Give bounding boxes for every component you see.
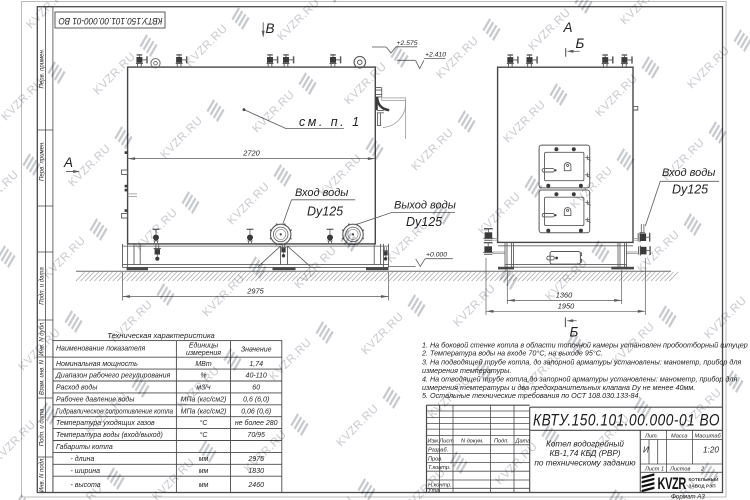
svg-text:0,06 (0,6): 0,06 (0,6) xyxy=(241,408,271,415)
svg-text:Лист: Лист xyxy=(644,466,660,472)
svg-text:+2.410: +2.410 xyxy=(425,52,446,59)
svg-text:Масса: Масса xyxy=(671,433,688,439)
svg-text:2975: 2975 xyxy=(246,286,264,295)
svg-text:Б: Б xyxy=(576,36,585,51)
svg-text:°С: °С xyxy=(200,431,209,439)
svg-text:1,74: 1,74 xyxy=(249,361,263,368)
svg-text:2460: 2460 xyxy=(247,482,264,489)
svg-text:измерения: измерения xyxy=(186,350,221,357)
svg-text:70/95: 70/95 xyxy=(247,432,265,439)
svg-text:°С: °С xyxy=(200,419,209,427)
svg-text:Температура воды (вход/выход): Температура воды (вход/выход) xyxy=(56,431,163,439)
svg-text:1:20: 1:20 xyxy=(703,446,719,455)
svg-text:Единицы: Единицы xyxy=(189,342,219,350)
svg-text:- длина: - длина xyxy=(71,455,95,463)
svg-text:Взам. инв. N: Взам. инв. N xyxy=(40,359,46,395)
svg-text:Пров.: Пров. xyxy=(428,456,443,462)
svg-text:+0.000: +0.000 xyxy=(426,252,447,259)
svg-text:Изм.Лист: Изм.Лист xyxy=(428,439,455,445)
svg-text:В: В xyxy=(266,21,275,36)
svg-text:Dy125: Dy125 xyxy=(672,183,708,197)
svg-text:0,6 (6,0): 0,6 (6,0) xyxy=(243,397,269,404)
svg-text:Котел водогрейный: Котел водогрейный xyxy=(546,440,624,449)
svg-text:- ширина: - ширина xyxy=(71,468,101,475)
svg-text:+2.575: +2.575 xyxy=(397,40,418,47)
svg-text:Инв. N подл.: Инв. N подл. xyxy=(40,457,46,492)
svg-text:Габариты котла: Габариты котла xyxy=(56,443,113,451)
svg-text:N докум.: N докум. xyxy=(461,439,484,445)
svg-text:измерения температуры.: измерения температуры. xyxy=(422,366,511,375)
svg-text:МПа (кгс/см2): МПа (кгс/см2) xyxy=(181,408,227,415)
svg-text:Значение: Значение xyxy=(241,347,272,354)
svg-text:не более 280: не более 280 xyxy=(235,419,278,427)
svg-text:Подп.: Подп. xyxy=(494,439,509,445)
svg-text:КВТУ.150.101.00.000-01 ВО: КВТУ.150.101.00.000-01 ВО xyxy=(59,16,163,26)
svg-text:Лит.: Лит. xyxy=(644,433,658,439)
svg-text:А: А xyxy=(63,155,73,170)
svg-text:по техническому заданию: по техническому заданию xyxy=(534,459,635,468)
svg-text:2720: 2720 xyxy=(242,149,260,158)
svg-text:Листов: Листов xyxy=(669,466,690,472)
svg-text:Диапазон рабочего регулировани: Диапазон рабочего регулирования xyxy=(55,372,171,380)
svg-text:1: 1 xyxy=(661,466,664,472)
svg-text:МВт: МВт xyxy=(195,361,212,368)
svg-text:Разраб.: Разраб. xyxy=(428,448,448,454)
svg-text:Наименование показателя: Наименование показателя xyxy=(56,346,146,353)
svg-text:1950: 1950 xyxy=(558,301,575,310)
svg-text:60: 60 xyxy=(252,385,260,392)
svg-text:Расход воды: Расход воды xyxy=(56,384,98,392)
svg-text:И: И xyxy=(643,446,649,455)
svg-text:см. п. 1: см. п. 1 xyxy=(299,115,362,129)
svg-text:Dy125: Dy125 xyxy=(307,205,343,219)
svg-text:мм: мм xyxy=(199,482,209,489)
svg-text:Перв. примен.: Перв. примен. xyxy=(40,141,46,181)
svg-text:Номинальная мощность: Номинальная мощность xyxy=(56,361,138,368)
svg-text:Масштаб: Масштаб xyxy=(695,433,722,439)
svg-text:40-110: 40-110 xyxy=(246,373,267,380)
svg-text:мм: мм xyxy=(199,468,209,475)
